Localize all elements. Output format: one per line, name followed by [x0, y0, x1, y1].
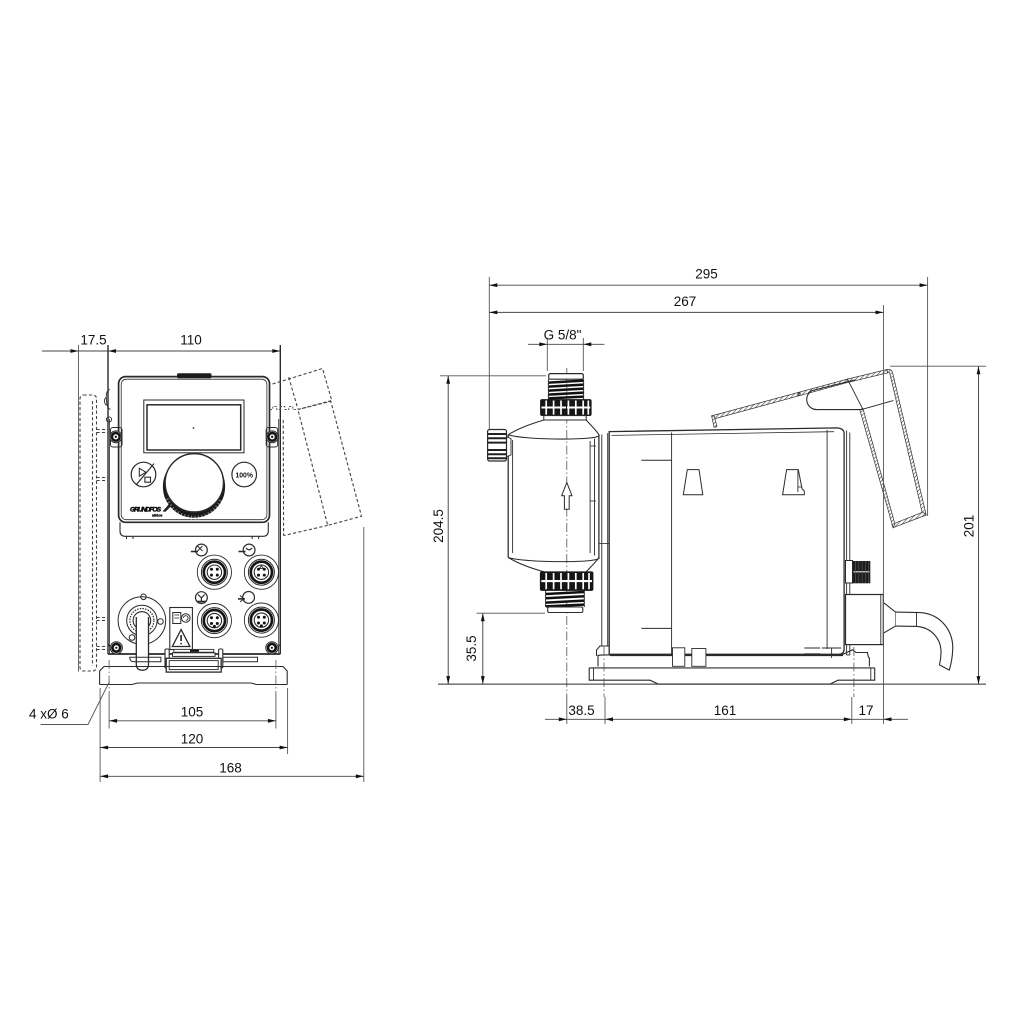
svg-text:204.5: 204.5: [431, 509, 446, 543]
svg-text:161: 161: [714, 703, 737, 718]
svg-text:GRUNDFOS: GRUNDFOS: [130, 507, 162, 514]
svg-text:168: 168: [219, 760, 242, 775]
svg-text:100%: 100%: [235, 470, 253, 479]
svg-text:4 xØ 6: 4 xØ 6: [29, 707, 69, 722]
svg-text:alldos: alldos: [152, 514, 162, 518]
svg-text:17: 17: [858, 703, 873, 718]
svg-text:105: 105: [181, 705, 204, 720]
svg-text:295: 295: [695, 267, 718, 282]
svg-text:35.5: 35.5: [464, 635, 479, 661]
svg-text:201: 201: [961, 515, 976, 538]
svg-text:110: 110: [180, 333, 202, 348]
svg-text:17.5: 17.5: [80, 333, 106, 348]
svg-text:267: 267: [674, 294, 697, 309]
svg-text:120: 120: [181, 732, 204, 747]
svg-text:38.5: 38.5: [568, 703, 594, 718]
svg-text:G 5/8": G 5/8": [544, 328, 582, 343]
